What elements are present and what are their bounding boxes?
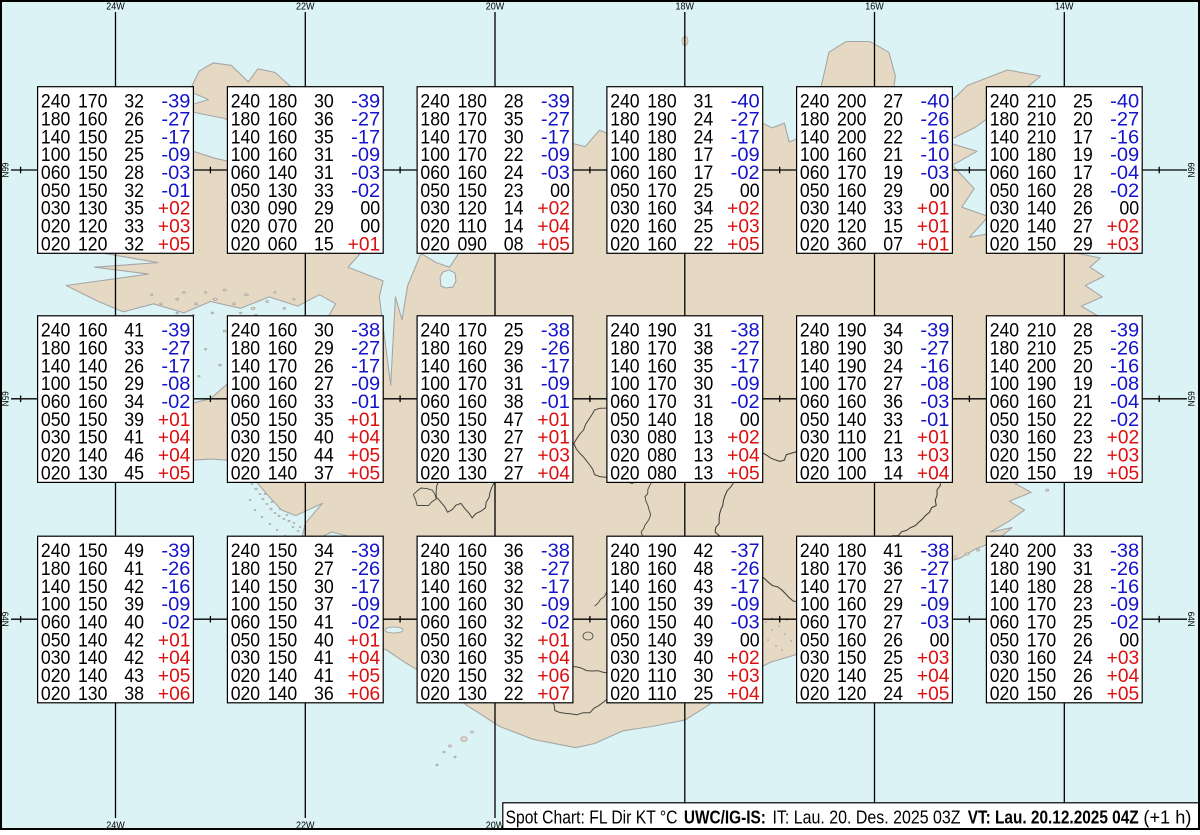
svg-text:150: 150 — [1027, 463, 1056, 484]
svg-text:27: 27 — [504, 463, 524, 484]
svg-text:24: 24 — [883, 684, 903, 705]
svg-text:+01: +01 — [348, 234, 381, 255]
svg-text:090: 090 — [458, 234, 487, 255]
svg-text:+06: +06 — [158, 684, 191, 705]
svg-text:22: 22 — [694, 234, 714, 255]
svg-text:(+1 h): (+1 h) — [1143, 807, 1191, 827]
svg-text:14: 14 — [883, 463, 903, 484]
svg-text:IT: Lau. 20. Des. 2025 03Z: IT: Lau. 20. Des. 2025 03Z — [773, 807, 961, 827]
svg-text:020: 020 — [41, 463, 70, 484]
svg-text:020: 020 — [800, 234, 829, 255]
svg-text:16W: 16W — [865, 2, 884, 13]
svg-text:08: 08 — [504, 234, 524, 255]
svg-text:020: 020 — [41, 684, 70, 705]
svg-text:+05: +05 — [727, 463, 760, 484]
svg-text:150: 150 — [1027, 684, 1056, 705]
svg-text:020: 020 — [610, 463, 639, 484]
svg-text:020: 020 — [800, 463, 829, 484]
svg-text:24W: 24W — [106, 2, 125, 13]
svg-text:32: 32 — [124, 234, 144, 255]
svg-text:14W: 14W — [1055, 2, 1074, 13]
svg-text:020: 020 — [990, 234, 1019, 255]
svg-text:37: 37 — [314, 463, 334, 484]
svg-text:140: 140 — [268, 463, 297, 484]
svg-text:22W: 22W — [296, 2, 315, 13]
svg-text:65N: 65N — [1186, 391, 1196, 406]
svg-text:Spot Chart: FL Dir KT °C: Spot Chart: FL Dir KT °C — [506, 807, 678, 827]
svg-text:020: 020 — [231, 684, 260, 705]
svg-text:020: 020 — [610, 234, 639, 255]
svg-text:020: 020 — [231, 234, 260, 255]
svg-text:26: 26 — [1073, 684, 1093, 705]
svg-text:120: 120 — [78, 234, 107, 255]
svg-text:VT: Lau. 20.12.2025 04Z: VT: Lau. 20.12.2025 04Z — [968, 807, 1139, 827]
svg-text:360: 360 — [837, 234, 866, 255]
svg-text:100: 100 — [837, 463, 866, 484]
svg-text:+05: +05 — [1107, 684, 1140, 705]
svg-text:130: 130 — [78, 684, 107, 705]
svg-text:160: 160 — [647, 234, 676, 255]
svg-text:+05: +05 — [158, 234, 191, 255]
svg-text:020: 020 — [800, 684, 829, 705]
svg-text:19: 19 — [1073, 463, 1093, 484]
svg-text:13: 13 — [694, 463, 714, 484]
svg-text:18W: 18W — [676, 2, 695, 13]
svg-text:+04: +04 — [537, 463, 570, 484]
svg-text:64N: 64N — [1186, 612, 1196, 627]
svg-text:+07: +07 — [537, 684, 570, 705]
svg-text:25: 25 — [694, 684, 714, 705]
svg-text:36: 36 — [314, 684, 334, 705]
svg-text:130: 130 — [458, 463, 487, 484]
svg-text:45: 45 — [124, 463, 144, 484]
svg-text:07: 07 — [883, 234, 903, 255]
svg-text:20W: 20W — [486, 2, 505, 13]
svg-text:+05: +05 — [917, 684, 950, 705]
svg-text:150: 150 — [1027, 234, 1056, 255]
svg-text:110: 110 — [647, 684, 676, 705]
svg-text:+04: +04 — [917, 463, 950, 484]
svg-text:+03: +03 — [1107, 234, 1140, 255]
svg-text:15: 15 — [314, 234, 334, 255]
svg-text:66N: 66N — [1186, 163, 1196, 178]
svg-text:+05: +05 — [727, 234, 760, 255]
svg-text:130: 130 — [78, 463, 107, 484]
svg-text:UWC/IG-IS:: UWC/IG-IS: — [684, 807, 766, 827]
svg-text:020: 020 — [231, 463, 260, 484]
svg-text:080: 080 — [647, 463, 676, 484]
svg-text:+04: +04 — [727, 684, 760, 705]
svg-text:060: 060 — [268, 234, 297, 255]
svg-text:22: 22 — [504, 684, 524, 705]
svg-text:38: 38 — [124, 684, 144, 705]
svg-text:+05: +05 — [158, 463, 191, 484]
svg-text:020: 020 — [990, 463, 1019, 484]
svg-text:+05: +05 — [348, 463, 381, 484]
svg-text:140: 140 — [268, 684, 297, 705]
svg-text:020: 020 — [420, 463, 449, 484]
svg-text:29: 29 — [1073, 234, 1093, 255]
svg-text:+06: +06 — [348, 684, 381, 705]
svg-text:+05: +05 — [537, 234, 570, 255]
svg-text:020: 020 — [610, 684, 639, 705]
svg-text:130: 130 — [458, 684, 487, 705]
svg-text:020: 020 — [420, 684, 449, 705]
svg-text:+01: +01 — [917, 234, 950, 255]
svg-text:020: 020 — [41, 234, 70, 255]
svg-text:+05: +05 — [1107, 463, 1140, 484]
svg-text:020: 020 — [990, 684, 1019, 705]
svg-text:020: 020 — [420, 234, 449, 255]
svg-text:120: 120 — [837, 684, 866, 705]
